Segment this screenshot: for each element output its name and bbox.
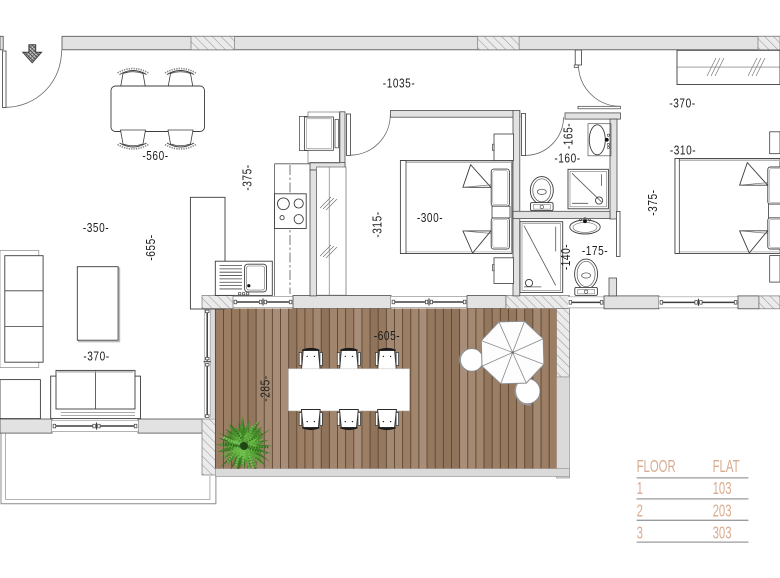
svg-text:-375-: -375- [242, 164, 255, 190]
svg-text:103: 103 [713, 480, 732, 499]
svg-text:-375-: -375- [647, 189, 660, 215]
svg-text:2: 2 [637, 502, 643, 521]
svg-text:FLOOR: FLOOR [637, 458, 676, 477]
svg-text:-300-: -300- [417, 212, 443, 225]
svg-text:-350-: -350- [83, 222, 109, 235]
svg-text:-605-: -605- [374, 330, 400, 343]
svg-text:203: 203 [713, 502, 732, 521]
svg-text:-655-: -655- [145, 234, 158, 260]
svg-text:-165-: -165- [563, 123, 576, 149]
svg-text:-370-: -370- [669, 98, 695, 111]
svg-text:1: 1 [637, 480, 643, 499]
svg-text:-370-: -370- [83, 351, 109, 364]
svg-text:FLAT: FLAT [713, 458, 740, 477]
svg-text:-1035-: -1035- [383, 78, 415, 91]
svg-text:-140-: -140- [560, 244, 573, 270]
svg-text:-315-: -315- [372, 211, 385, 237]
svg-text:-160-: -160- [554, 153, 580, 166]
svg-text:303: 303 [713, 524, 732, 543]
svg-text:-285-: -285- [260, 375, 273, 401]
svg-text:-175-: -175- [582, 245, 608, 258]
svg-text:-310-: -310- [670, 145, 696, 158]
svg-text:-560-: -560- [142, 150, 168, 163]
svg-text:3: 3 [637, 524, 643, 543]
